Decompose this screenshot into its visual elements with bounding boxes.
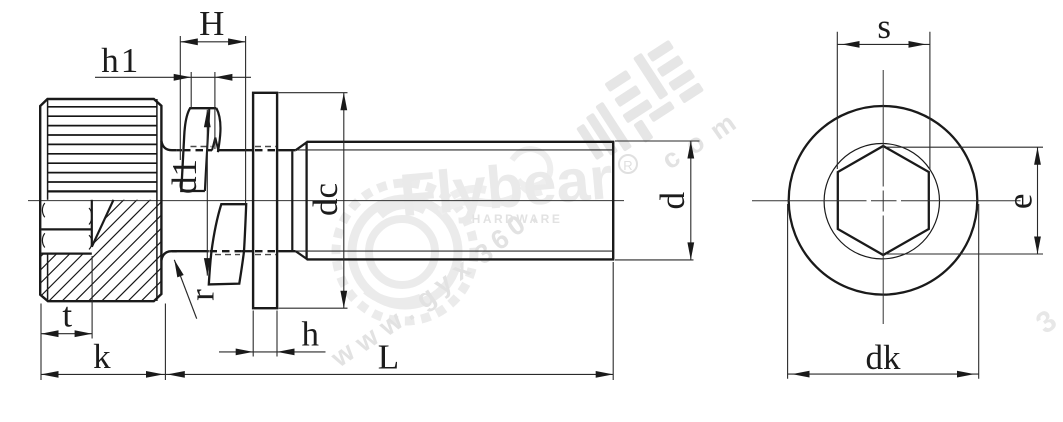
svg-text:k: k	[93, 337, 111, 376]
svg-text:h1: h1	[101, 41, 140, 80]
svg-text:d1: d1	[165, 159, 204, 194]
svg-text:h: h	[302, 315, 320, 354]
svg-text:H: H	[199, 4, 224, 43]
svg-text:dc: dc	[306, 183, 345, 216]
svg-text:s: s	[877, 7, 891, 46]
svg-text:dk: dk	[866, 338, 902, 377]
svg-text:e: e	[1001, 194, 1040, 210]
svg-text:L: L	[378, 338, 399, 377]
svg-text:t: t	[62, 296, 72, 335]
svg-text:d: d	[653, 192, 692, 210]
svg-text:R: R	[623, 158, 632, 173]
svg-text:r: r	[183, 289, 222, 301]
